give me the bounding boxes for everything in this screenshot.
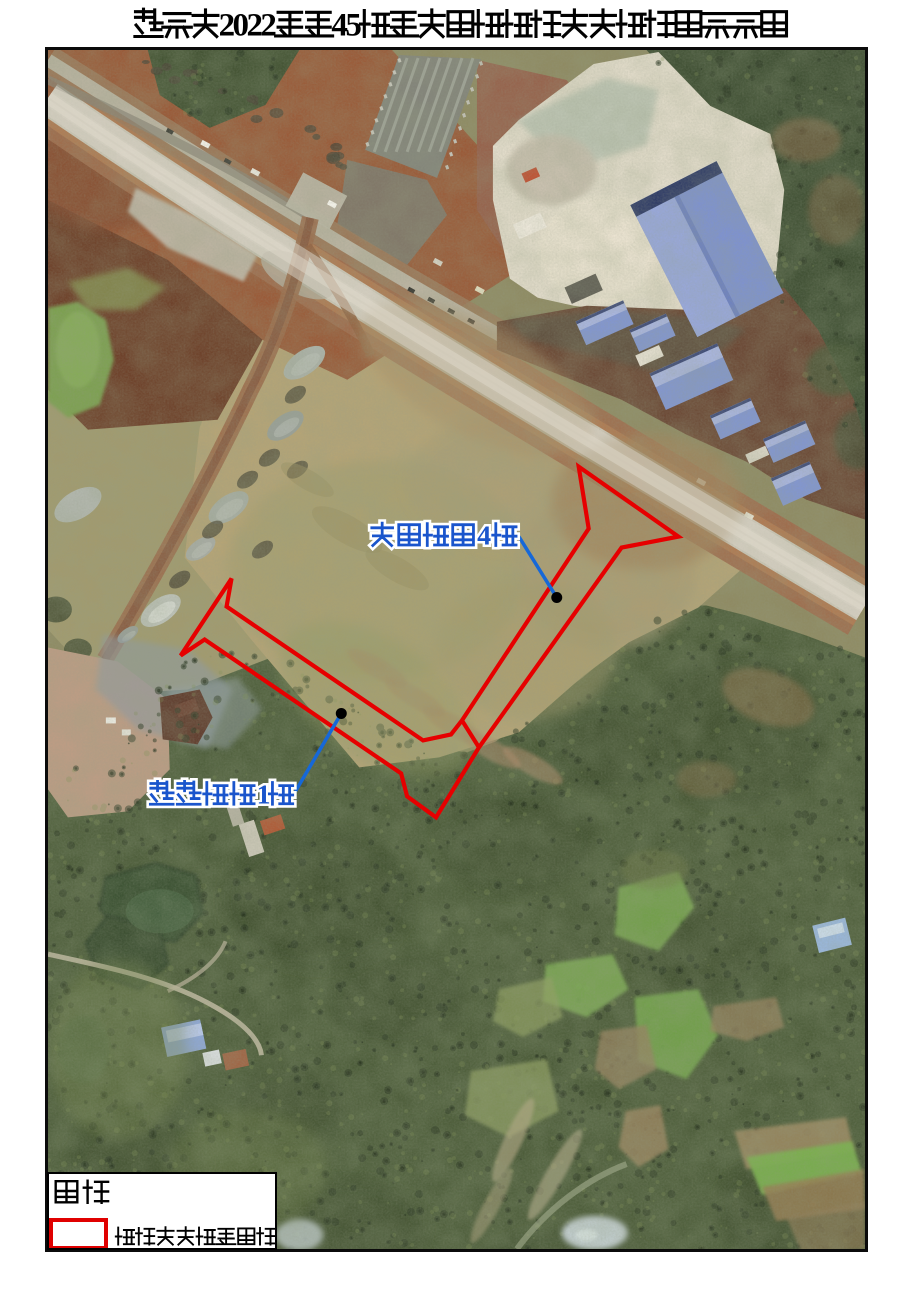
svg-text:2: 2 — [260, 7, 277, 43]
svg-text:1: 1 — [257, 779, 271, 810]
svg-text:4: 4 — [477, 520, 491, 551]
svg-text:5: 5 — [345, 7, 362, 43]
